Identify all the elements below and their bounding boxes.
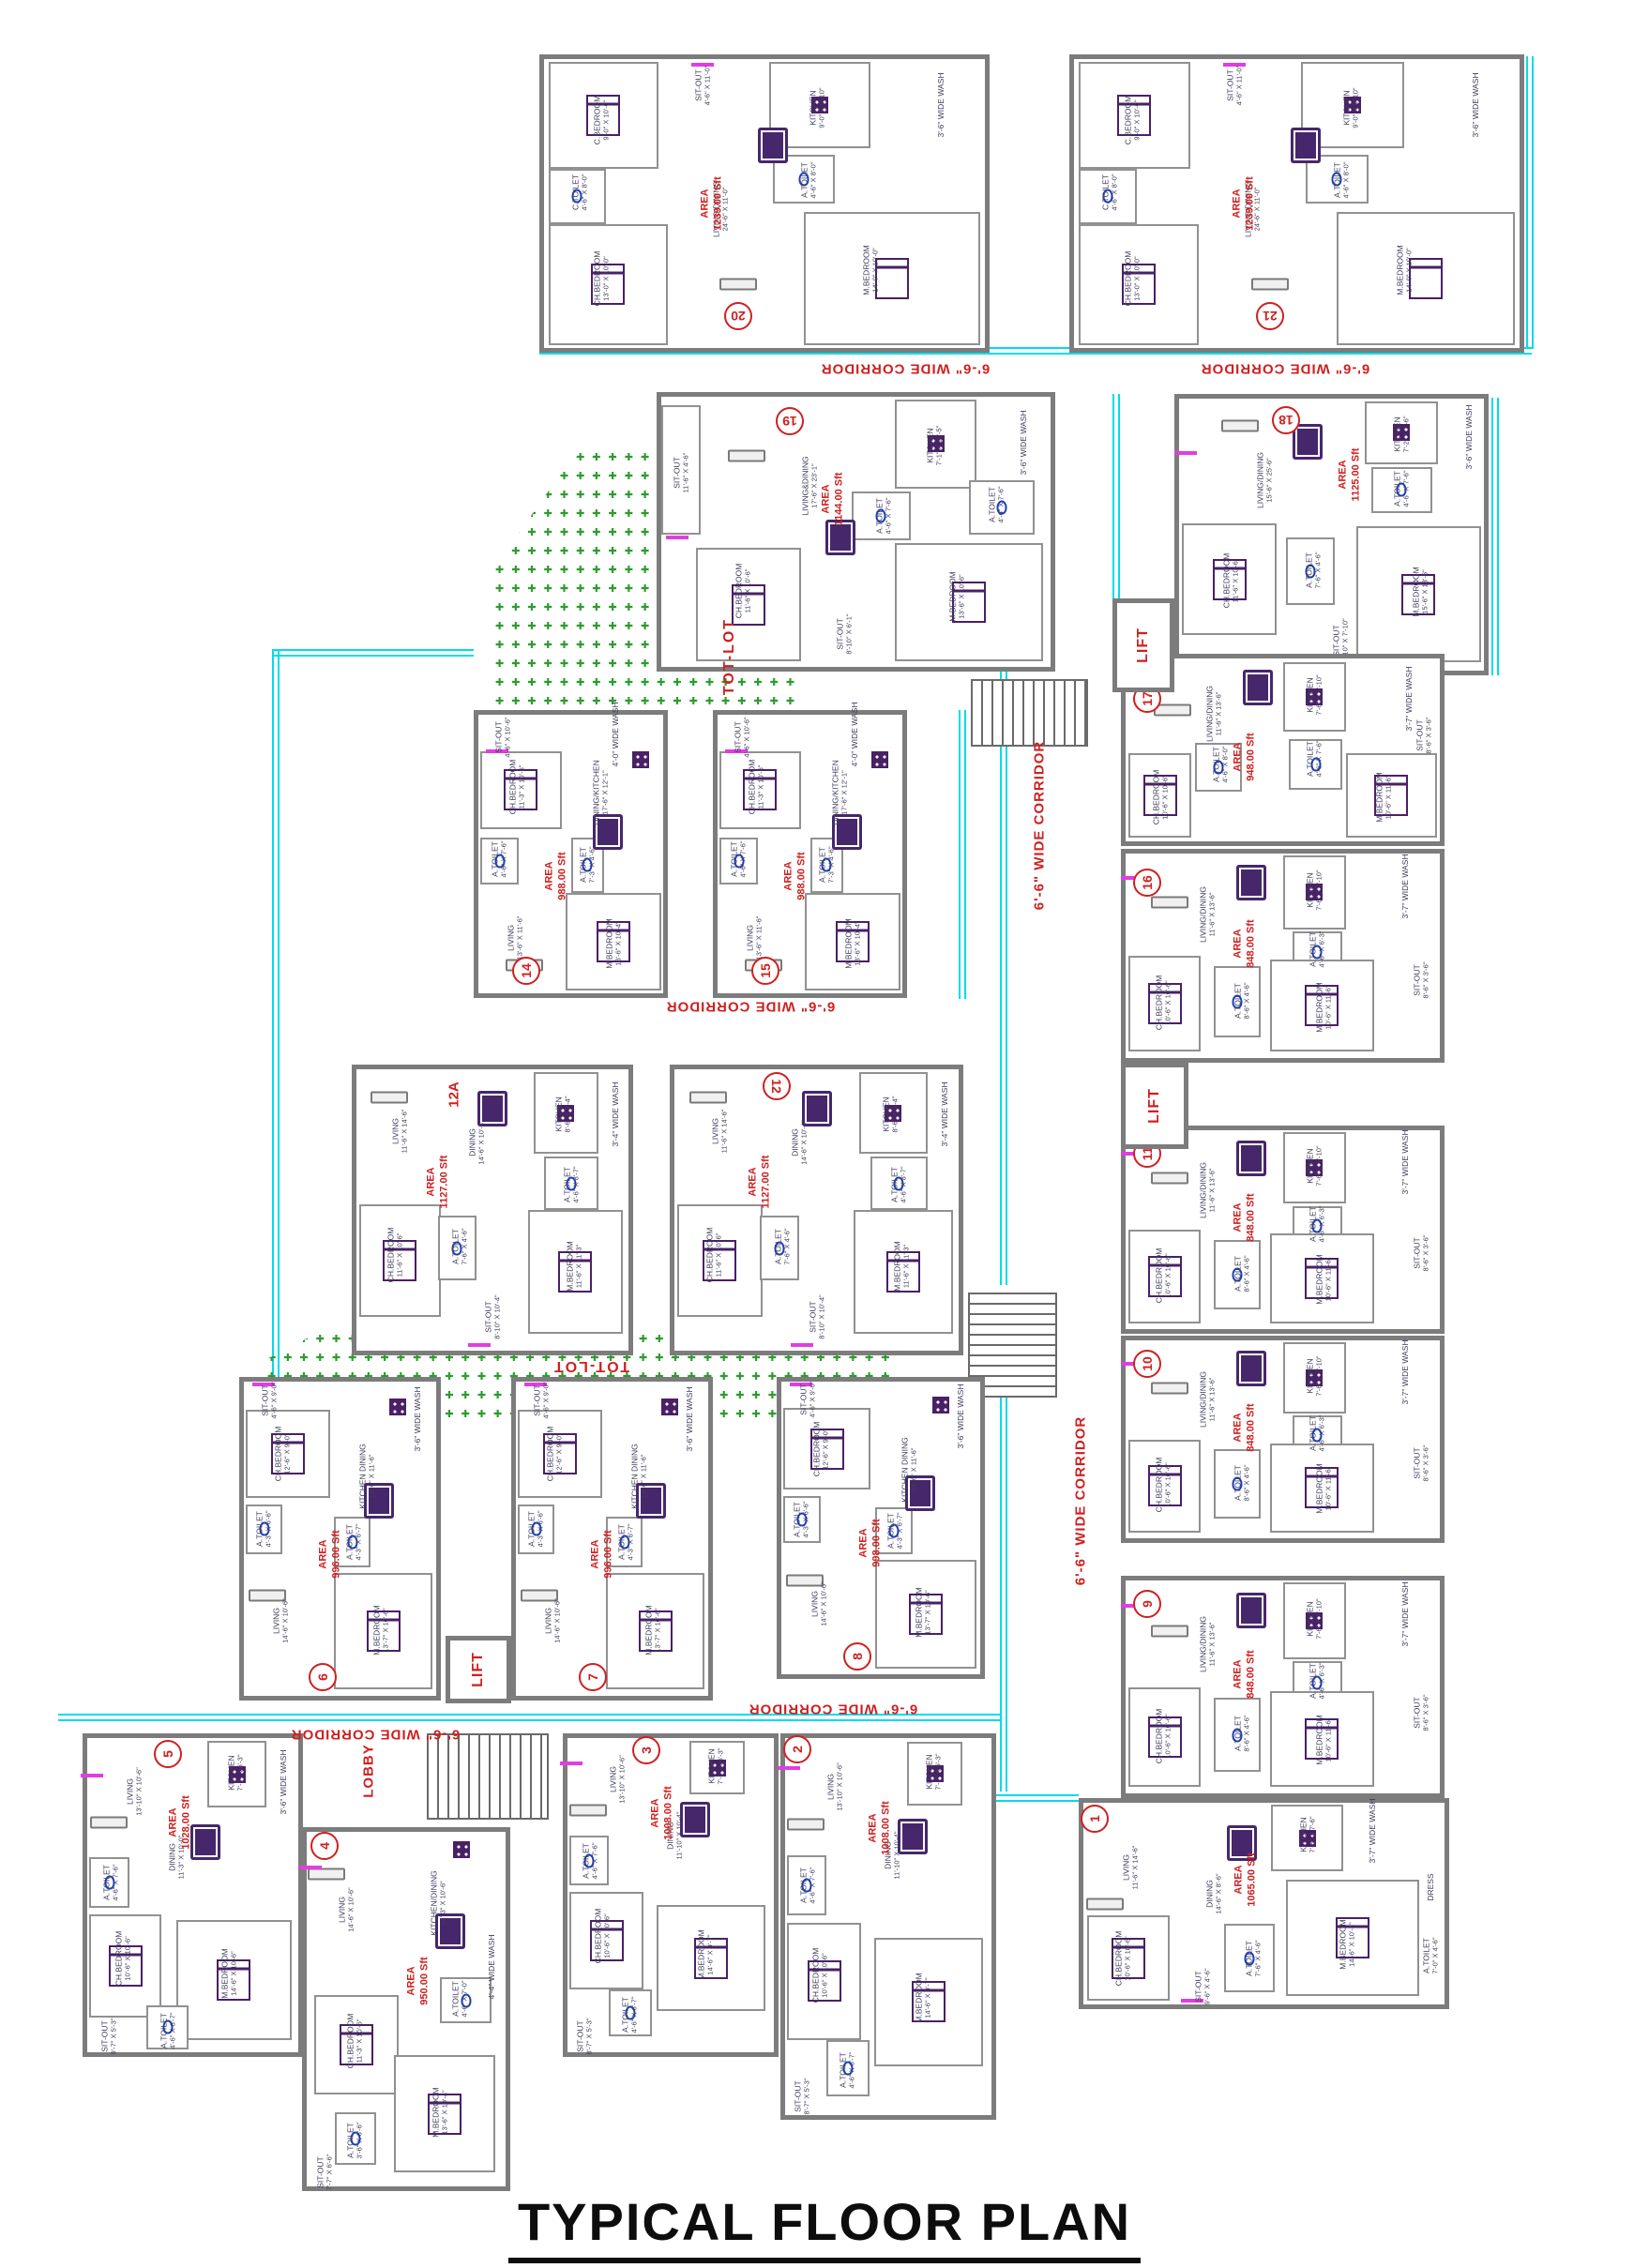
- unit-9: LIVING/DINING11'-6" X 13'-6"KITCHEN7'-6"…: [1121, 1576, 1445, 1798]
- corridor-line: [1112, 394, 1120, 598]
- unit-16: LIVING/DINING11'-6" X 13'-6"KITCHEN7'-6"…: [1121, 849, 1445, 1063]
- room-label: M.BEDROOM10'-6" X 11'-6": [1314, 1716, 1332, 1765]
- page-title: TYPICAL FLOOR PLAN: [508, 2191, 1141, 2263]
- floor-plan: TYPICAL FLOOR PLAN ✚✚✚✚✚✚✚✚✚✚✚✚✚✚✚✚✚✚✚ ✚…: [0, 0, 1649, 2268]
- win-icon: [778, 1766, 800, 1770]
- unit-number-badge: 6: [309, 1663, 337, 1691]
- room-label: M.BEDROOM10'-6" X 11'-6": [1314, 982, 1332, 1032]
- table-icon: [680, 1802, 710, 1837]
- room-label: KITCHEN7'-6" X 7'-10": [1305, 870, 1323, 911]
- room-label: KITCHEN7'-2" X 7'-6": [1393, 416, 1411, 452]
- unit-8: SIT-OUT4'-6" X 9'-0"CH.BEDROOM12'-6" X 9…: [777, 1377, 985, 1679]
- room-label: 3'-6" WIDE WASH: [684, 1387, 693, 1452]
- room-label: CH.BEDROOM12'-6" X 9'-0": [273, 1427, 291, 1482]
- room-label: SIT-OUT4'-6" X 11'-0": [694, 65, 712, 105]
- room-label: M.BEDROOM13'-6" X 10'-4": [431, 2087, 448, 2137]
- stove-icon: [871, 751, 888, 768]
- room-label: SIT-OUT8'-6" X 3'-6": [1412, 962, 1430, 999]
- room-label: A.TOILET4'-6" X 6'-3": [1309, 1662, 1326, 1699]
- room-label: CH.BEDROOM10'-6" X 10'-6": [1155, 1708, 1172, 1763]
- corridor-line: [274, 649, 474, 657]
- room-label: A.TOILET4'-3" X 6'-6": [793, 1501, 810, 1537]
- unit-number-badge: 14: [512, 957, 540, 985]
- room-label: 3'-4" WIDE WASH: [940, 1081, 949, 1146]
- room-label: M.BEDROOM13'-6" X 10'-6": [948, 571, 966, 621]
- corridor-label: 6'-6" WIDE CORRIDOR: [821, 361, 991, 377]
- room-label: CH.BEDROOM11'-6" X 10'-6": [734, 564, 752, 619]
- room-label: A.TOILET4'-6" X 7'-6": [490, 841, 507, 878]
- win-icon: [791, 1343, 813, 1347]
- unit-area-label: AREA948.00 Sft: [1233, 733, 1259, 781]
- room-label: DINING14'-6" X 10'-4": [791, 1120, 809, 1164]
- room-label: A.TOILET4'-6" X 6'-3": [1309, 1205, 1326, 1242]
- room-label: M.BEDROOM10'-6" X 11'-6": [1314, 1254, 1332, 1304]
- room-label: KITCHEN7'-6" X 7'-10": [1305, 674, 1323, 715]
- sofa-icon: [689, 1092, 727, 1104]
- corridor-line: [1000, 1398, 1007, 1792]
- room-label: DINING/KITCHEN17'-6" X 12'-1": [591, 760, 609, 824]
- unit-area-label: AREA1127.00 Sft: [747, 1156, 773, 1209]
- room-label: 3'-7" WIDE WASH: [1403, 666, 1413, 731]
- unit-area-label: AREA1008.00 Sft: [649, 1787, 675, 1840]
- room-label: SIT-OUT8'-10" X 10'-4": [483, 1294, 501, 1338]
- unit-area-label: AREA1239.00 Sft: [1231, 176, 1257, 230]
- room-label: LIVING14'-6" X 10'-6": [338, 1887, 356, 1931]
- table-icon: [1236, 1351, 1266, 1386]
- corridor-line: [1491, 398, 1499, 675]
- unit-20: C.BEDROOM9'-0" X 10'-0"SIT-OUT4'-6" X 11…: [539, 54, 990, 353]
- unit-10: LIVING/DINING11'-6" X 13'-6"KITCHEN7'-6"…: [1121, 1336, 1445, 1543]
- tot-lot-label: TOT-LOT: [721, 618, 738, 695]
- unit-area-label: AREA1125.00 Sft: [1337, 448, 1363, 502]
- table-icon: [1243, 670, 1273, 705]
- room-label: LIVING13'-10" X 10'-6": [825, 1762, 843, 1811]
- sofa-icon: [1151, 897, 1188, 909]
- room-label: 3'-7" WIDE WASH: [1368, 1799, 1377, 1864]
- room-label: SIT-OUT4'-6" X 9'-0": [798, 1381, 816, 1417]
- room-label: A.TOILET4'-6" X 6'-3": [1309, 931, 1326, 968]
- room-label: M.BEDROOM14'-0" X 10'-0": [861, 245, 879, 295]
- room-label: SIT-OUT11'-6" X 4'-6": [672, 452, 689, 492]
- unit-area-label: AREA950.00 Sft: [405, 1957, 431, 2004]
- unit-number-badge: 1: [1081, 1805, 1109, 1833]
- sofa-icon: [728, 450, 765, 462]
- room-label: KITCHEN8'-6" X 9'-4": [882, 1096, 900, 1132]
- unit-5: LIVING13'-10" X 10'-6"KITCHEN7'-7" X 6'-…: [83, 1733, 303, 2057]
- unit-6: SIT-OUT4'-6" X 9'-0"CH.BEDROOM12'-6" X 9…: [239, 1377, 441, 1701]
- win-icon: [299, 1866, 322, 1869]
- room-label: M.BEDROOM10'-6" X 11'-6": [1374, 773, 1392, 823]
- room-label: 3'-7" WIDE WASH: [1400, 1339, 1410, 1404]
- room-label: LIVING/DINING11'-6" X 13'-6": [1199, 1162, 1217, 1218]
- unit-area-label: AREA1065.00 Sft: [1233, 1852, 1260, 1906]
- room-label: CH.BEDROOM10'-6" X 10'-6": [114, 1930, 132, 1986]
- unit-number-badge: 8: [843, 1642, 871, 1671]
- room-label: CH.BEDROOM10'-6" X 10'-6": [1155, 1458, 1172, 1513]
- lift: LIFT: [1112, 598, 1174, 692]
- room-label: A.TOILET4'-6" X 6'-7": [159, 2012, 176, 2049]
- room-label: C.BEDROOM9'-0" X 10'-0": [1123, 95, 1141, 144]
- room-label: M.BEDROOM14'-6" X 9'-7": [915, 1973, 932, 2023]
- room-label: M.BEDROOM13'-6" X 10'-4": [604, 918, 622, 968]
- room-label: LIVING11'-6" X 14'-6": [391, 1110, 409, 1154]
- sofa-icon: [787, 1819, 824, 1831]
- room-label: M.BEDROOM10'-6" X 11'-6": [1314, 1464, 1332, 1514]
- room-label: KITCHEN7'-6" X 7'-10": [1305, 1598, 1323, 1639]
- room-label: CH.BEDROOM12'-6" X 9'-0": [545, 1427, 563, 1482]
- stove-icon: [932, 1397, 949, 1414]
- unit-area-label: AREA1028.00 Sft: [167, 1796, 193, 1850]
- unit-15: SIT-OUT4'-6" X 10'-6"4'-0" WIDE WASHCH.B…: [713, 710, 907, 998]
- room-label: M.BEDROOM14'-6" X 10'-3": [1338, 1919, 1355, 1969]
- unit-number-badge: 20: [724, 302, 752, 330]
- corridor-label: 6'-6" WIDE CORRIDOR: [291, 1727, 461, 1743]
- unit-18: LIVING/DINING15'-6" X 25'-6"KITCHEN7'-2"…: [1174, 394, 1489, 675]
- room-label: KITCHEN7'-7" X 6'-3": [707, 1748, 725, 1785]
- room-label: A.TOILET4'-6" X 8'-0": [799, 162, 817, 199]
- unit-19: SIT-OUT11'-6" X 4'-6"LIVING&DINING17'-6"…: [657, 392, 1055, 672]
- room-label: A.TOILET7'-6" X 4'-6": [1244, 1940, 1262, 1976]
- room-label: KITCHEN7'-1" X 11'-5": [925, 426, 943, 466]
- room-label: A.TOILET4'-6" X 7'-6": [729, 841, 747, 878]
- unit-7: SIT-OUT4'-6" X 9'-0"CH.BEDROOM12'-6" X 9…: [511, 1377, 713, 1701]
- room-label: 3'-6" WIDE WASH: [1464, 404, 1474, 469]
- room-label: M.BEDROOM11'-6" X 11'-3": [893, 1241, 911, 1291]
- room-label: M.BEDROOM13'-6" X 10'-4": [843, 918, 861, 968]
- sofa-icon: [1251, 279, 1289, 291]
- room-label: A.TOILET8'-6" X 4'-6": [1233, 1255, 1250, 1292]
- lift: LIFT: [446, 1636, 511, 1703]
- room-label: A.TOILET4'-3" X 6'-7": [885, 1513, 903, 1550]
- corridor-line: [959, 710, 966, 999]
- win-icon: [81, 1774, 103, 1777]
- corridor-line: [1526, 56, 1534, 349]
- unit-area-label: AREA1008.00 Sft: [867, 1802, 893, 1855]
- room-label: CH.BEDROOM10'-6" X 10'-6": [1151, 770, 1169, 825]
- room-label: KITCHEN DINING14'-6" X 11'-6": [358, 1444, 376, 1508]
- unit-area-label: AREA988.00 Sft: [543, 853, 569, 900]
- room-label: A.TOILET4'-6" X 7'-6": [582, 1842, 599, 1879]
- table-icon: [1236, 1141, 1266, 1176]
- room-label: C.TOILET4'-6" X 8'-0": [570, 174, 588, 210]
- room-label: DINING/KITCHEN17'-6" X 12'-1": [830, 760, 848, 824]
- room-label: 3'-7" WIDE WASH: [1400, 854, 1410, 918]
- sofa-icon: [1086, 1898, 1124, 1910]
- staircase: [971, 679, 1088, 747]
- room-label: CH.BEDROOM10'-6" X 10'-6": [811, 1948, 829, 2003]
- table-icon: [1236, 865, 1266, 900]
- room-label: LIVING13'-10" X 10'-6": [125, 1767, 143, 1816]
- unit-3: LIVING13'-10" X 10'-6"KITCHEN7'-7" X 6'-…: [563, 1733, 779, 2057]
- room-label: KITCHEN DINING14'-6" X 11'-6": [900, 1437, 917, 1502]
- room-label: A.TOILET4'-3" X 6'-6": [254, 1511, 272, 1548]
- unit-12A: LIVING11'-6" X 14'-6"DINING14'-6" X 10'-…: [352, 1065, 633, 1355]
- stove-icon: [661, 1399, 678, 1415]
- room-label: 3'-6" WIDE WASH: [956, 1384, 965, 1449]
- room-label: A.TOILET4'-6" X 8'-7": [563, 1166, 581, 1202]
- room-label: CH.BEDROOM13'-0" X 10'-0": [593, 251, 611, 307]
- room-label: A.TOILET4'-6" X 6'-7": [620, 1996, 638, 2033]
- corridor-label: 6'-6" WIDE CORRIDOR: [1201, 361, 1370, 377]
- bed-icon: [1409, 258, 1443, 299]
- room-label: A.TOILET8'-6" X 4'-6": [1233, 1464, 1250, 1501]
- unit-area-label: AREA988.00 Sft: [782, 853, 809, 900]
- room-label: SIT-OUT8'-10" X 10'-4": [808, 1294, 825, 1338]
- table-icon: [190, 1824, 220, 1860]
- room-label: A.TOILET7'-6" X 4'-6": [1304, 552, 1322, 588]
- room-label: SIT-OUT4'-6" X 9'-0": [260, 1383, 278, 1419]
- lift-label: LIFT: [470, 1652, 487, 1687]
- unit-number-badge: 19: [776, 407, 804, 435]
- unit-number-badge: 4: [310, 1832, 339, 1860]
- room-label: A.TOILET4'-6" X 7'-6": [101, 1865, 119, 1901]
- room-label: M.BEDROOM13'-7" X 10'-6": [914, 1588, 931, 1638]
- corridor-line: [272, 649, 280, 1377]
- room-label: M.BEDROOM14'-0" X 10'-0": [1395, 245, 1413, 295]
- room-label: SIT-OUT8'-7" X 5'-3": [575, 2019, 593, 2055]
- room-label: CH.BEDROOM11'-3" X 10'-6": [508, 760, 526, 815]
- room-label: KITCHEN8'-6" X 9'-4": [554, 1096, 572, 1132]
- unit-number-badge: 12A: [446, 1081, 462, 1108]
- room-label: LIVING/DINING11'-6" X 13'-6": [1199, 1371, 1217, 1428]
- win-icon: [1174, 451, 1197, 455]
- room-label: 3'-6" WIDE WASH: [279, 1749, 288, 1814]
- sofa-icon: [1221, 420, 1259, 432]
- unit-number-badge: 5: [154, 1740, 182, 1768]
- room-label: 3'-6" WIDE WASH: [1019, 410, 1028, 475]
- room-label: A.TOILET7'-3" X 4'-6": [579, 847, 597, 884]
- unit-number-badge: 16: [1133, 869, 1161, 897]
- unit-12: LIVING11'-6" X 14'-6"DINING14'-6" X 10'-…: [670, 1065, 963, 1355]
- unit-area-label: AREA848.00 Sft: [1233, 1403, 1259, 1451]
- unit-area-label: AREA996.00 Sft: [318, 1531, 344, 1579]
- room-label: 3'-6" WIDE WASH: [1470, 73, 1479, 138]
- room-label: DRESS: [1426, 1874, 1435, 1901]
- sofa-icon: [1151, 1382, 1188, 1394]
- room-label: A.TOILET4'-6" X 6'-3": [1309, 1415, 1326, 1452]
- room-label: CH.BEDROOM10'-6" X 10'-6": [594, 1909, 612, 1964]
- room-label: M.BEDROOM14'-6" X 9'-7": [697, 1929, 715, 1979]
- room-label: SIT-OUT8'-6" X 3'-6": [1412, 1235, 1430, 1272]
- room-label: LIVING/DINING15'-6" X 25'-6": [1255, 452, 1273, 508]
- unit-number-badge: 2: [783, 1735, 811, 1763]
- lift: LIFT: [1121, 1063, 1188, 1149]
- room-label: KITCHEN/DINING14'-3" X 10'-6": [429, 1870, 446, 1935]
- tot-lot-label: TOT-LOT: [552, 1357, 629, 1374]
- room-label: SIT-OUT8'-6" X 3'-6": [1415, 717, 1433, 753]
- room-label: 3'-4" WIDE WASH: [610, 1081, 619, 1146]
- sofa-icon: [308, 1868, 345, 1881]
- room-label: CH.BEDROOM11'-6" X 10'-6": [1222, 553, 1240, 609]
- room-label: CH.BEDROOM10'-6" X 10'-6": [1114, 1930, 1132, 1986]
- unit-4: LIVING14'-6" X 10'-6"KITCHEN/DINING14'-3…: [302, 1827, 510, 2191]
- room-label: A.TOILET4'-3" X 6'-7": [616, 1523, 634, 1560]
- room-label: CH.BEDROOM11'-3" X 10'-6": [748, 760, 765, 815]
- room-label: 3'-7" WIDE WASH: [1400, 1129, 1410, 1194]
- stove-icon: [453, 1841, 470, 1858]
- unit-number-badge: 9: [1133, 1590, 1161, 1618]
- stove-icon: [632, 751, 649, 768]
- unit-number-badge: 10: [1133, 1350, 1161, 1378]
- room-label: LIVING&DINING17'-6" X 23'-1": [800, 456, 818, 515]
- room-label: A.TOILET7'-0" X 4'-6": [1421, 1938, 1439, 1974]
- room-label: 4'-0" WIDE WASH: [611, 702, 620, 766]
- room-label: A.TOILET4'-3" X 6'-7": [344, 1523, 362, 1560]
- room-label: A.TOILET7'-6" X 4'-6": [774, 1228, 792, 1264]
- room-label: DINING14'-6" X 10'-4": [467, 1120, 485, 1164]
- staircase: [427, 1733, 549, 1820]
- table-icon: [1236, 1593, 1266, 1628]
- win-icon: [468, 1343, 491, 1347]
- room-label: SIT-OUT4'-6" X 9'-0": [532, 1383, 550, 1419]
- unit-1: LIVING11'-6" X 14'-6"DINING14'-6" X 8'-6…: [1079, 1798, 1449, 2009]
- room-label: M.BEDROOM11'-6" X 11'-3": [565, 1241, 582, 1291]
- room-label: SIT-OUT4'-6" X 11'-0": [1225, 65, 1243, 105]
- sofa-icon: [1154, 703, 1191, 716]
- room-label: A.TOILET4'-6" X 7'-6": [799, 1867, 817, 1903]
- room-label: 3'-6" WIDE WASH: [412, 1387, 421, 1452]
- corridor-line: [985, 1794, 1079, 1802]
- room-label: KITCHEN7'-7" X 6'-3": [226, 1754, 244, 1791]
- room-label: 4'-4" WIDE WASH: [487, 1934, 496, 1999]
- room-label: CH.BEDROOM12'-6" X 9'-0": [812, 1421, 830, 1476]
- room-label: CH.BEDROOM11'-6" X 10'-6": [705, 1228, 723, 1283]
- unit-number-badge: 18: [1272, 406, 1300, 434]
- room-label: A.TOILET4'-6" X 7'-6": [1305, 741, 1323, 778]
- table-icon: [758, 128, 788, 163]
- unit-number-badge: 12: [763, 1072, 791, 1100]
- room-label: SIT-OUT4'-6" X 10'-6": [733, 717, 750, 757]
- corridor-label: 6'-6" WIDE CORRIDOR: [749, 1701, 918, 1717]
- table-icon: [1291, 128, 1321, 163]
- unit-area-label: AREA998.00 Sft: [858, 1519, 885, 1566]
- lift-label: LIFT: [1135, 627, 1152, 663]
- unit-area-label: AREA848.00 Sft: [1233, 919, 1259, 967]
- room-label: A.TOILET4'-6" X 7'-6": [874, 497, 892, 534]
- room-label: A.TOILET8'-6" X 4'-6": [1233, 982, 1250, 1019]
- room-label: M.BEDROOM14'-6" X 10'-6": [219, 1949, 237, 1999]
- room-label: LIVING14'-6" X 10'-6": [543, 1598, 561, 1642]
- unit-number-badge: 21: [1256, 302, 1284, 330]
- room-label: A.TOILET3'-6" X 6'-6": [345, 2122, 363, 2158]
- room-label: KITCHEN7'-6" X 7'-10": [1305, 1355, 1323, 1396]
- sofa-icon: [371, 1092, 408, 1104]
- room-label: LIVING11'-6" X 14'-6": [711, 1110, 729, 1154]
- room-label: LIVING11'-6" X 14'-6": [1121, 1845, 1139, 1889]
- unit-area-label: AREA996.00 Sft: [590, 1531, 616, 1579]
- room-label: KITCHEN7'-6" X 7'-10": [1305, 1146, 1323, 1187]
- room-label: SIT-OUT8'-6" X 3'-6": [1412, 1444, 1430, 1481]
- room-label: A.TOILET4'-6" X 7'-6": [1393, 470, 1411, 507]
- room-label: M.BEDROOM13'-7" X 10'-6": [643, 1605, 661, 1655]
- room-label: A.TOILET4'-6" X 7'-6": [987, 487, 1005, 523]
- room-label: SIT-OUT8'-10" X 6'-1": [835, 614, 853, 655]
- room-label: LIVING/DINING11'-6" X 13'-6": [1204, 686, 1222, 742]
- room-label: 3'-7" WIDE WASH: [1400, 1582, 1410, 1647]
- unit-area-label: AREA1239.00 Sft: [699, 176, 725, 230]
- unit-21: C.BEDROOM9'-0" X 10'-0"SIT-OUT4'-6" X 11…: [1069, 54, 1524, 353]
- room-label: KITCHEN9'-0" X 8'-10": [809, 88, 826, 129]
- room-label: M.BEDROOM15'-6" X 13'-6": [1411, 567, 1429, 616]
- unit-area-label: AREA1127.00 Sft: [425, 1156, 451, 1209]
- room-label: CH.BEDROOM13'-0" X 10'-0": [1123, 251, 1141, 307]
- room-label: SIT-OUT9'-7" X 5'-3": [99, 2019, 117, 2055]
- unit-14: SIT-OUT4'-6" X 10'-6"4'-0" WIDE WASHCH.B…: [474, 710, 668, 998]
- unit-area-label: AREA848.00 Sft: [1233, 1194, 1259, 1242]
- table-icon: [898, 1819, 928, 1854]
- unit-area-label: AREA848.00 Sft: [1233, 1650, 1259, 1698]
- room-label: CH.BEDROOM10'-6" X 10'-6": [1155, 975, 1172, 1031]
- room-label: LIVING13'-10" X 10'-6": [608, 1755, 626, 1804]
- room-label: CH.BEDROOM11'-6" X 10'-6": [386, 1228, 403, 1283]
- unit-number-badge: 15: [751, 957, 779, 985]
- win-icon: [666, 536, 688, 539]
- corridor-label: 6'-6" WIDE CORRIDOR: [666, 999, 836, 1015]
- corridor-label: 6'-6" WIDE CORRIDOR: [1073, 1416, 1089, 1586]
- win-icon: [560, 1761, 582, 1765]
- room-label: SIT-OUT9'-6" X 4'-6": [1193, 1968, 1211, 2004]
- unit-number-badge: 7: [579, 1663, 607, 1691]
- room-label: LIVING13'-6" X 11'-6": [507, 915, 524, 960]
- room-label: CH.BEDROOM10'-6" X 10'-6": [1155, 1247, 1172, 1303]
- room-label: KITCHEN9'-0" X 8'-10": [1341, 88, 1359, 129]
- room-label: C.TOILET4'-6" X 8'-0": [1100, 174, 1118, 210]
- lift-label: LIFT: [1146, 1088, 1163, 1124]
- stove-icon: [389, 1399, 406, 1415]
- room-label: C.BEDROOM9'-0" X 10'-0": [593, 95, 611, 144]
- room-label: CH.BEDROOM11'-3" X 10'-6": [345, 2014, 363, 2069]
- room-label: A.TOILET4'-6" X 8'-0": [1211, 747, 1229, 783]
- room-label: KITCHEN7'-6" X 7'-6": [1298, 1817, 1316, 1853]
- sofa-icon: [569, 1805, 607, 1817]
- room-label: SIT-OUT7'-7" X 6'-6": [315, 2154, 333, 2190]
- room-label: 4'-0" WIDE WASH: [850, 702, 859, 766]
- sofa-icon: [90, 1817, 128, 1829]
- room-label: SIT-OUT8'-6" X 3'-6": [1412, 1694, 1430, 1731]
- corridor-label: 6'-6" WIDE CORRIDOR: [1032, 741, 1048, 911]
- bed-icon: [875, 258, 909, 299]
- lobby-label: LOBBY: [361, 1744, 377, 1798]
- room-label: A.TOILET4'-6" X 6'-7": [838, 2051, 855, 2088]
- unit-11: LIVING/DINING11'-6" X 13'-6"KITCHEN7'-6"…: [1121, 1126, 1445, 1334]
- room-label: A.TOILET4'-3" X 6'-6": [526, 1511, 544, 1548]
- room-label: LIVING14'-6" X 10'-6": [810, 1581, 828, 1625]
- unit-area-label: AREA1144.00 Sft: [820, 473, 846, 526]
- room-label: SIT-OUT4'-6" X 10'-6": [493, 717, 511, 757]
- room-label: LIVING14'-6" X 10'-6": [271, 1598, 289, 1642]
- room-label: KITCHEN DINING14'-6" X 11'-6": [630, 1444, 648, 1508]
- room-label: 3'-6" WIDE WASH: [936, 73, 946, 138]
- room-label: A.TOILET8'-6" X 4'-6": [1233, 1716, 1250, 1752]
- room-label: SIT-OUT8'-7" X 5'-3": [793, 2078, 810, 2114]
- room-label: M.BEDROOM13'-7" X 10'-6": [371, 1605, 389, 1655]
- sofa-icon: [1151, 1625, 1188, 1638]
- unit-number-badge: 3: [632, 1736, 660, 1764]
- sofa-icon: [1151, 1172, 1188, 1184]
- room-label: A.TOILET4'-6" X 8'-0": [1332, 162, 1350, 199]
- room-label: A.TOILET4'-6" X 7'-0": [451, 1980, 469, 2017]
- room-label: A.TOILET7'-6" X 4'-6": [451, 1228, 469, 1264]
- room-label: DINING14'-6" X 8'-6": [1204, 1873, 1222, 1913]
- table-icon: [1293, 424, 1323, 460]
- room-label: LIVING13'-6" X 11'-6": [746, 915, 764, 960]
- room-label: A.TOILET4'-6" X 8'-7": [890, 1166, 908, 1202]
- unit-2: LIVING13'-10" X 10'-6"KITCHEN7'-7" X 6'-…: [780, 1733, 996, 2120]
- room-label: LIVING/DINING11'-6" X 13'-6": [1199, 886, 1217, 943]
- room-label: KITCHEN7'-7" X 6'-3": [925, 1754, 943, 1791]
- room-label: LIVING/DINING11'-6" X 13'-6": [1199, 1616, 1217, 1672]
- room-label: A.TOILET7'-3" X 4'-6": [818, 847, 836, 884]
